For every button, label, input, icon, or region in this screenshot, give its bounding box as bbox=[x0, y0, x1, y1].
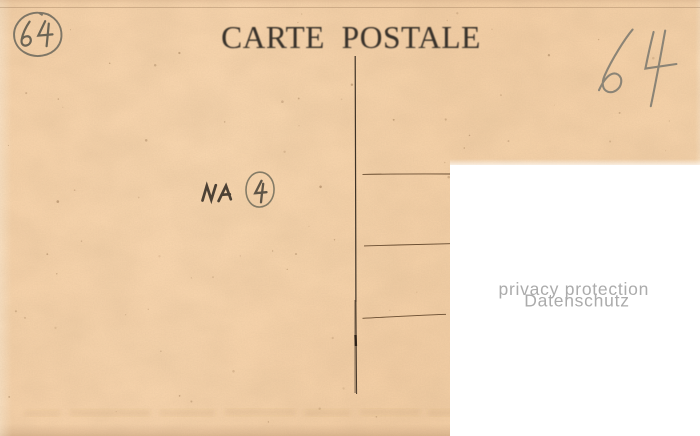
svg-text:CARTE POSTALE: CARTE POSTALE bbox=[221, 20, 481, 55]
svg-text:Datenschutz: Datenschutz bbox=[524, 291, 630, 311]
